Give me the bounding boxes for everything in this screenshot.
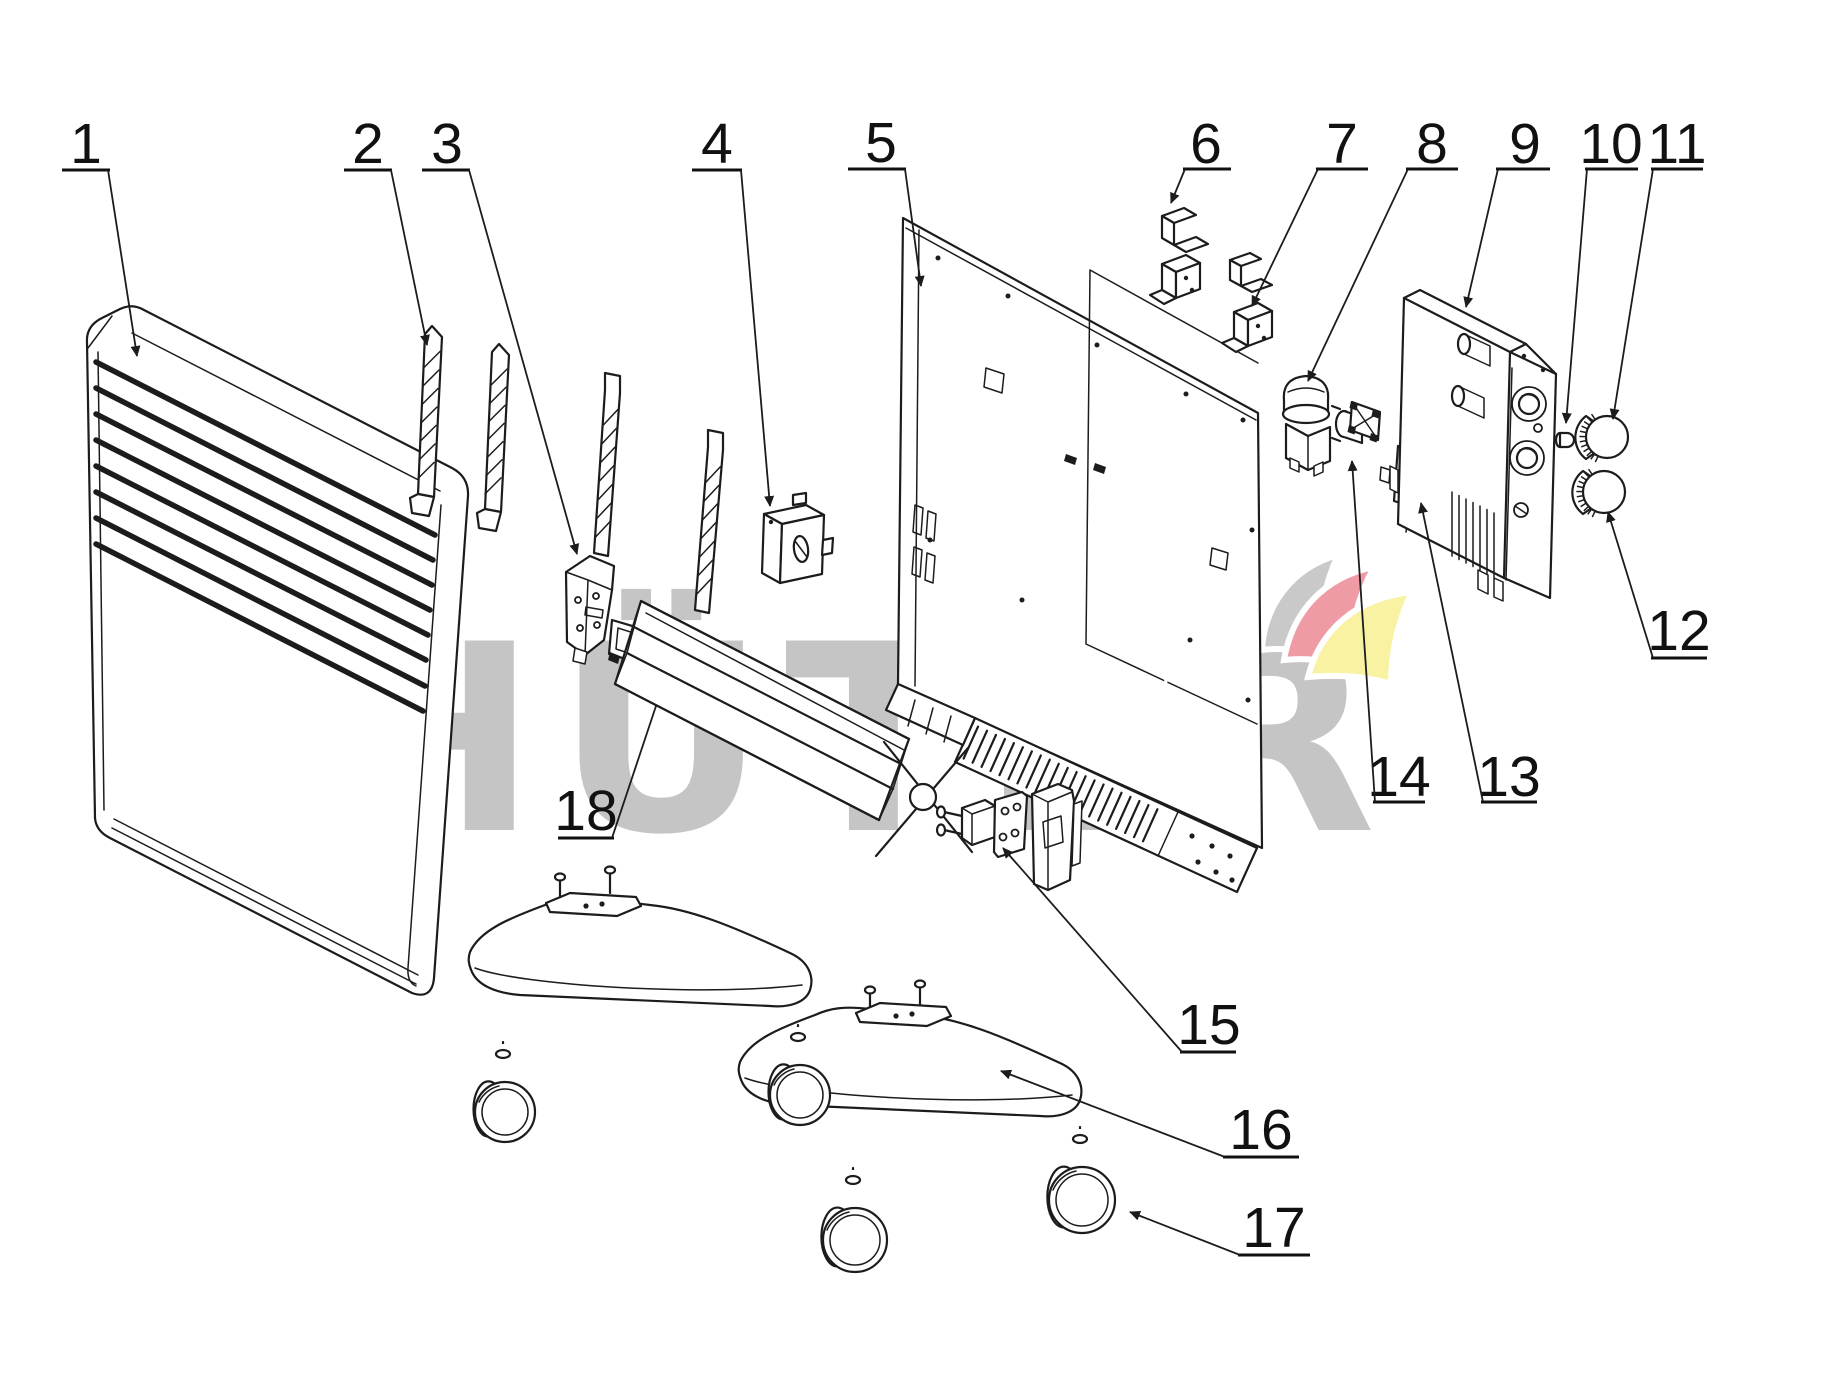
part-7-bracket-b xyxy=(1222,303,1272,352)
callout-leader xyxy=(741,170,770,506)
part-14-valve-assembly xyxy=(1332,401,1380,443)
caster-wheel-1 xyxy=(474,1042,536,1142)
callout-number: 16 xyxy=(1229,1098,1292,1162)
callout-number: 3 xyxy=(431,112,463,176)
callout-number: 5 xyxy=(865,111,897,175)
callout-leader xyxy=(1466,169,1498,307)
callout-17: 17 xyxy=(1130,1196,1310,1260)
callout-number: 9 xyxy=(1509,112,1541,176)
callout-number: 13 xyxy=(1477,745,1540,809)
callout-7: 7 xyxy=(1252,112,1368,306)
callout-leader xyxy=(1608,512,1653,658)
callout-leader xyxy=(1130,1212,1240,1255)
part-7-bracket-a xyxy=(1230,253,1272,292)
callout-number: 8 xyxy=(1416,112,1448,176)
callout-leader xyxy=(1171,169,1185,203)
callout-6: 6 xyxy=(1171,112,1231,203)
part-1-front-panel xyxy=(87,306,468,994)
part-12-knob xyxy=(1572,470,1625,517)
callout-leader xyxy=(1252,169,1318,306)
mounting-strap-4 xyxy=(695,430,723,613)
mounting-strap-2 xyxy=(477,344,509,531)
part-6-bracket-b xyxy=(1150,255,1200,304)
part-8-thermostat-motor xyxy=(1283,376,1330,476)
callout-4: 4 xyxy=(692,112,770,506)
part-9-control-panel xyxy=(1390,290,1556,601)
part-11-knob xyxy=(1575,415,1628,462)
callout-number: 14 xyxy=(1367,745,1430,809)
callout-number: 12 xyxy=(1647,599,1710,663)
part-10-button xyxy=(1556,433,1574,447)
mounting-strap-3 xyxy=(594,373,620,556)
diagram-canvas: HÜTER xyxy=(0,0,1821,1381)
callout-10: 10 xyxy=(1566,112,1643,423)
callout-leader xyxy=(391,170,427,345)
callout-2: 2 xyxy=(344,112,427,345)
callout-number: 18 xyxy=(554,779,617,843)
callout-number: 15 xyxy=(1177,993,1240,1057)
callout-number: 1 xyxy=(70,112,102,176)
callout-9: 9 xyxy=(1466,112,1550,307)
callout-number: 4 xyxy=(701,112,733,176)
callout-leader xyxy=(1613,169,1653,419)
callout-number: 2 xyxy=(352,112,384,176)
callout-leader xyxy=(1308,169,1408,381)
part-6-bracket-a xyxy=(1162,208,1208,252)
callout-number: 7 xyxy=(1326,112,1358,176)
callout-number: 17 xyxy=(1242,1196,1305,1260)
callout-number: 11 xyxy=(1647,112,1706,176)
part-4-switch-box xyxy=(762,493,833,583)
callout-number: 6 xyxy=(1190,112,1222,176)
part-17-caster-wheel xyxy=(1047,1127,1115,1233)
callout-leader xyxy=(1566,169,1587,423)
caster-wheel-3 xyxy=(821,1168,887,1272)
callout-12: 12 xyxy=(1608,512,1711,663)
callout-number: 10 xyxy=(1579,112,1642,176)
exploded-parts-diagram: HÜTER xyxy=(0,0,1821,1381)
